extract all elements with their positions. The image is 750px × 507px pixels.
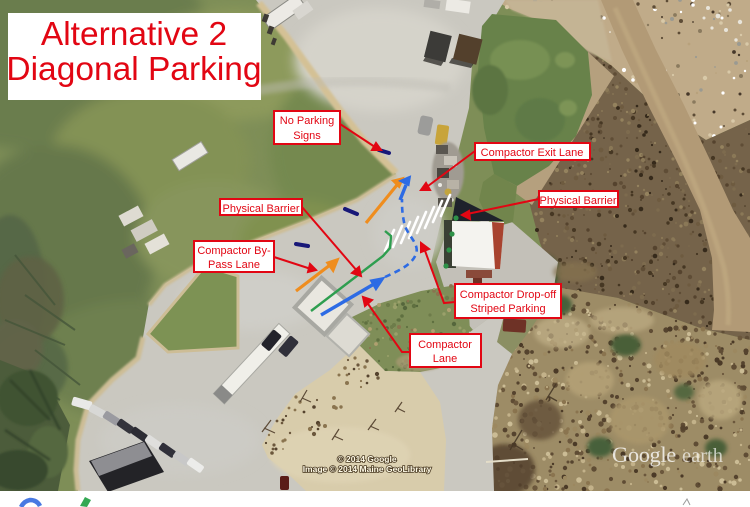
svg-text:Compactor: Compactor — [418, 339, 472, 351]
svg-text:earth: earth — [682, 445, 723, 467]
svg-text:Physical Barrier: Physical Barrier — [222, 203, 299, 215]
svg-text:© 2014 Google: © 2014 Google — [337, 454, 396, 464]
svg-text:Physical Barrier: Physical Barrier — [539, 195, 616, 207]
svg-text:Image © 2014 Maine GeoLibrary: Image © 2014 Maine GeoLibrary — [303, 464, 432, 474]
svg-text:Signs: Signs — [293, 130, 321, 142]
svg-text:Striped Parking: Striped Parking — [470, 303, 545, 315]
svg-text:Diagonal Parking: Diagonal Parking — [6, 51, 261, 88]
svg-text:Pass Lane: Pass Lane — [208, 259, 260, 271]
svg-text:Compactor Drop-off: Compactor Drop-off — [460, 289, 557, 301]
svg-text:Compactor By-: Compactor By- — [197, 245, 271, 257]
svg-text:Google: Google — [612, 442, 676, 467]
svg-text:Alternative 2: Alternative 2 — [41, 16, 227, 53]
svg-text:No Parking: No Parking — [280, 115, 334, 127]
svg-text:Compactor Exit Lane: Compactor Exit Lane — [481, 147, 584, 159]
svg-text:Lane: Lane — [433, 353, 457, 365]
